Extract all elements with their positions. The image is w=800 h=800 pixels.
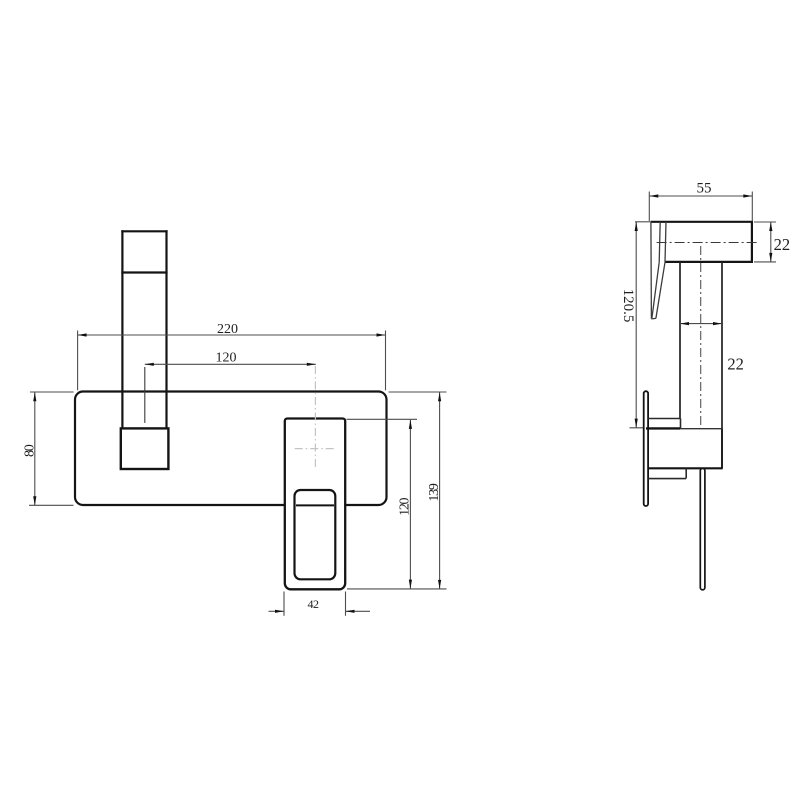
svg-text:220: 220 xyxy=(217,322,238,337)
svg-text:139: 139 xyxy=(427,483,442,501)
svg-text:55: 55 xyxy=(697,181,712,197)
svg-text:22: 22 xyxy=(774,235,791,254)
svg-text:22: 22 xyxy=(727,355,744,374)
svg-text:120.5: 120.5 xyxy=(620,289,636,323)
svg-text:80: 80 xyxy=(23,444,38,457)
svg-text:120: 120 xyxy=(216,351,237,366)
svg-text:120: 120 xyxy=(397,497,412,515)
svg-text:42: 42 xyxy=(308,597,320,611)
